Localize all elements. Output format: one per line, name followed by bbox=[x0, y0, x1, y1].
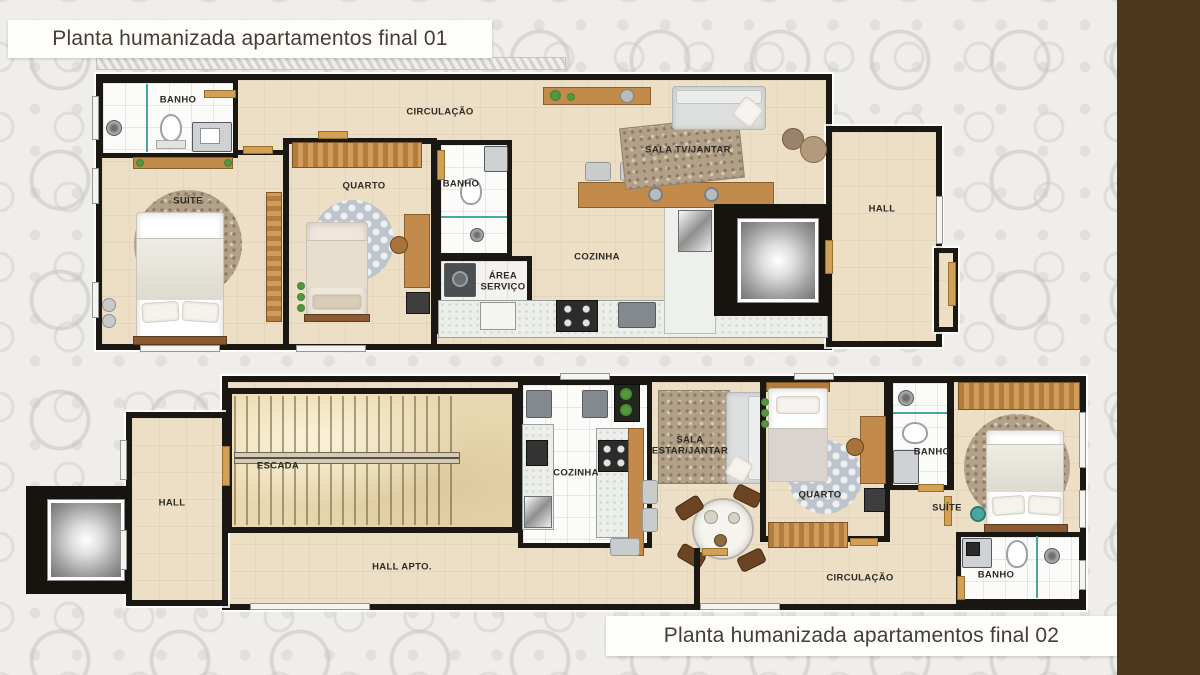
room-label-banho-quarto: BANHO bbox=[914, 446, 951, 457]
shower-glass bbox=[1036, 536, 1038, 598]
pouf bbox=[970, 506, 986, 522]
shower-glass bbox=[893, 412, 947, 414]
plant-icon bbox=[761, 409, 769, 417]
room-label-cozinha: COZINHA bbox=[553, 467, 599, 478]
suite-blanket bbox=[987, 444, 1063, 492]
room-label-hall: HALL bbox=[159, 497, 186, 508]
plate bbox=[728, 512, 740, 524]
pillow bbox=[991, 495, 1025, 516]
door bbox=[702, 548, 728, 556]
suite-wardrobe bbox=[958, 382, 1080, 410]
plan2-hall-floor bbox=[126, 412, 228, 606]
stool bbox=[642, 480, 658, 504]
room-label-sala: SALA ESTAR/JANTAR bbox=[648, 435, 732, 458]
room-label-banho-suite: BANHO bbox=[978, 569, 1015, 580]
plan2-title: Planta humanizada apartamentos final 02 bbox=[664, 624, 1059, 648]
room-label-suite: SUÍTE bbox=[932, 502, 962, 513]
kitchen-sink bbox=[526, 390, 552, 418]
door bbox=[957, 576, 965, 600]
window bbox=[250, 603, 370, 610]
floorplan-poster: BANHO SUÍTE QUARTO CIRCULAÇÃO BANHO ÁREA… bbox=[0, 0, 1200, 675]
plate bbox=[704, 510, 718, 524]
door bbox=[918, 484, 944, 492]
plant-icon bbox=[761, 398, 769, 406]
plant-icon bbox=[620, 404, 632, 416]
cabinet bbox=[864, 488, 886, 512]
window bbox=[1079, 412, 1086, 468]
window bbox=[794, 373, 834, 380]
window bbox=[120, 530, 127, 570]
plant-icon bbox=[761, 420, 769, 428]
plan2-title-bar: Planta humanizada apartamentos final 02 bbox=[606, 616, 1117, 656]
dish-rack bbox=[524, 496, 552, 528]
window bbox=[700, 603, 780, 610]
plate bbox=[714, 534, 727, 547]
wall bbox=[694, 548, 700, 606]
elevator-car bbox=[48, 500, 124, 580]
pillow bbox=[776, 396, 820, 414]
room-label-circulacao: CIRCULAÇÃO bbox=[826, 572, 893, 583]
shower-head-icon bbox=[898, 390, 914, 406]
wall bbox=[948, 376, 954, 490]
window bbox=[560, 373, 610, 380]
quarto-blanket bbox=[769, 428, 827, 481]
toilet-icon bbox=[902, 422, 928, 444]
toilet-icon bbox=[1006, 540, 1028, 568]
plant-icon bbox=[620, 388, 632, 400]
plan1-title-bar: Planta humanizada apartamentos final 01 bbox=[8, 20, 492, 58]
sink-basin bbox=[966, 542, 980, 556]
room-label-quarto: QUARTO bbox=[798, 489, 841, 500]
desk bbox=[860, 416, 886, 484]
window bbox=[120, 440, 127, 480]
plan2-floorplan: HALL ESCADA HALL APTO. COZINHA SALA ESTA… bbox=[0, 0, 1200, 675]
window bbox=[1079, 490, 1086, 528]
kitchen-sink bbox=[582, 390, 608, 418]
coffee-maker bbox=[526, 440, 548, 466]
room-label-hall-apto: HALL APTO. bbox=[372, 561, 432, 572]
stool bbox=[610, 538, 640, 556]
desk-chair bbox=[846, 438, 864, 456]
stove bbox=[598, 440, 630, 472]
door bbox=[222, 446, 230, 486]
quarto-wardrobe bbox=[768, 522, 848, 548]
window bbox=[1079, 560, 1086, 590]
pillow bbox=[1027, 495, 1061, 516]
plan1-title: Planta humanizada apartamentos final 01 bbox=[52, 27, 447, 51]
shower-head-icon bbox=[1044, 548, 1060, 564]
door bbox=[850, 538, 878, 546]
stool bbox=[642, 508, 658, 532]
room-label-escada: ESCADA bbox=[257, 460, 299, 471]
